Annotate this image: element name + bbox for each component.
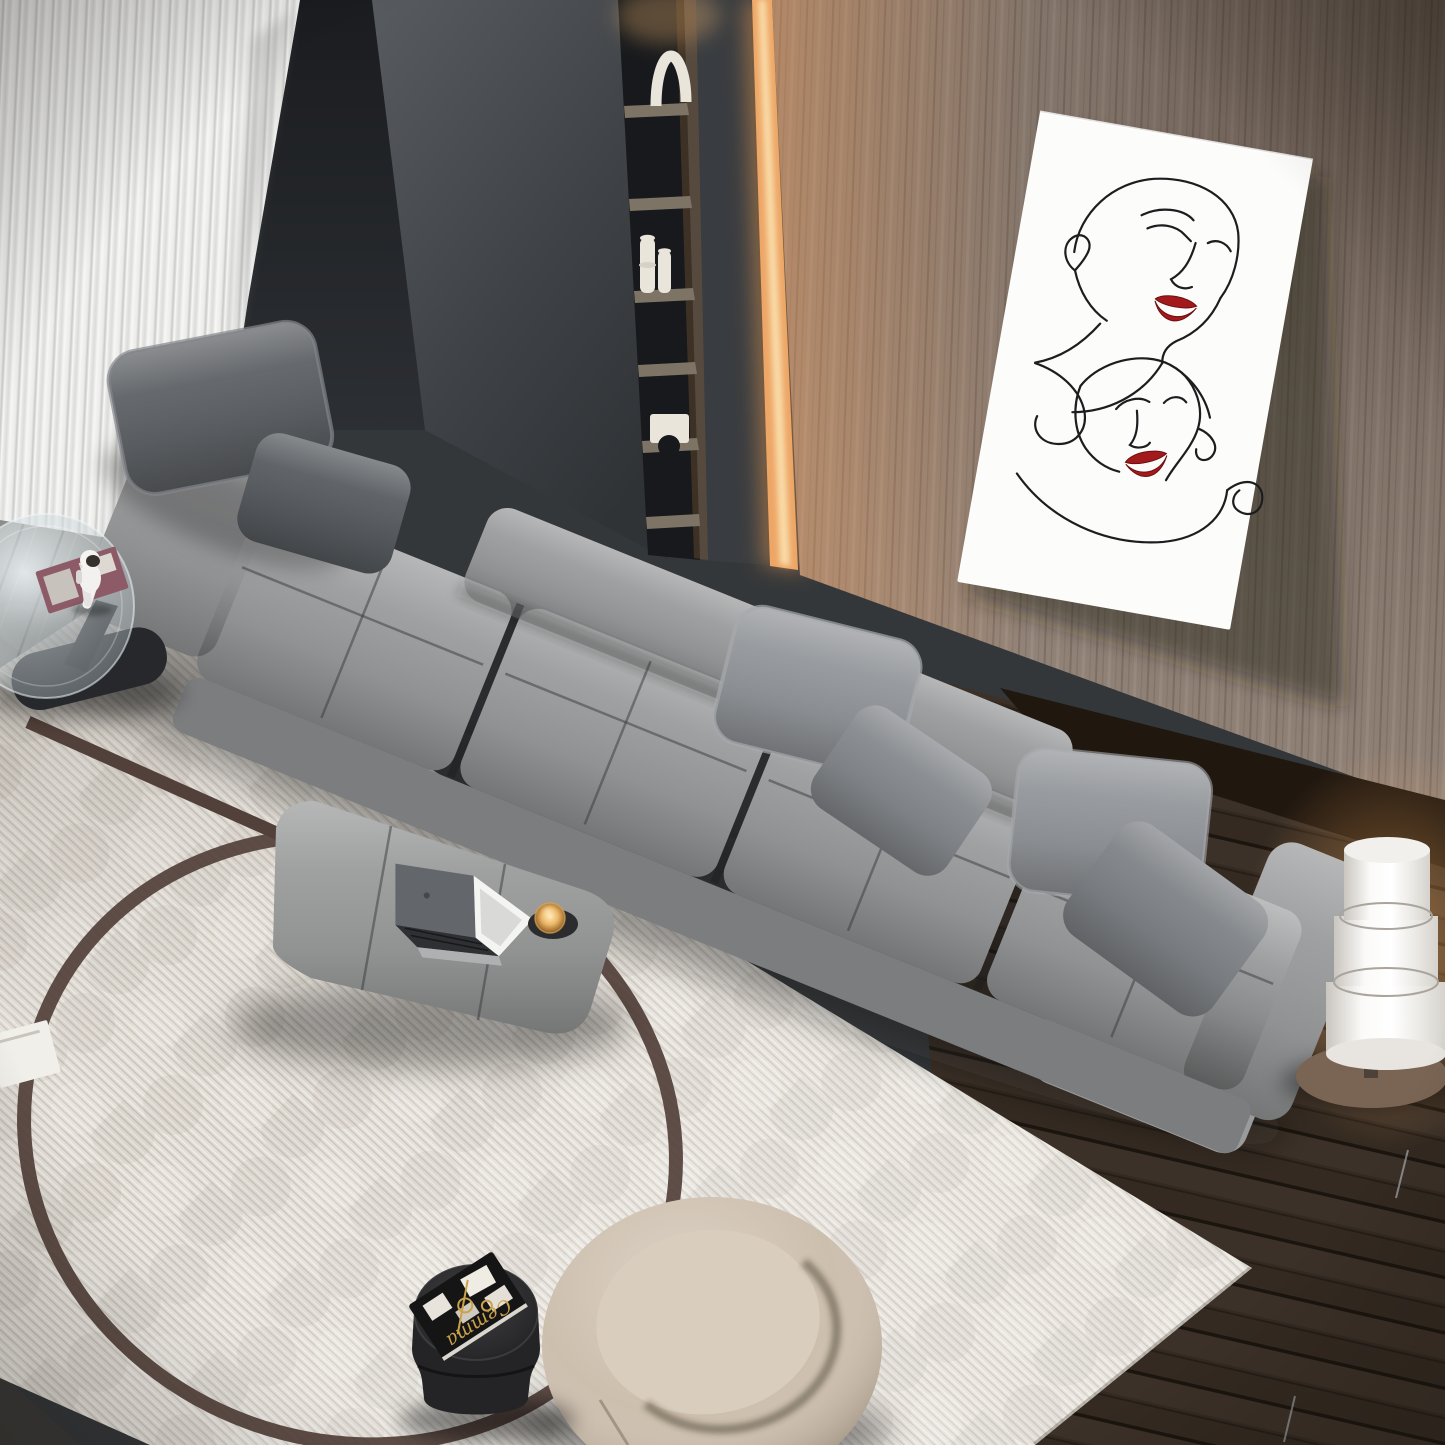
living-room-scene: Cemma (0, 0, 1445, 1445)
scene-canvas: Cemma (0, 0, 1445, 1445)
vignette-overlay (0, 0, 1445, 1445)
